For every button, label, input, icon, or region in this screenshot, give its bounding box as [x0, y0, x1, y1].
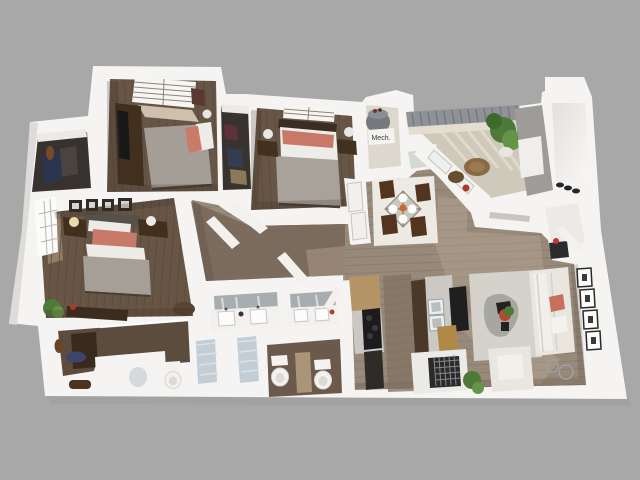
svg-text:Mech.: Mech. [371, 135, 390, 142]
